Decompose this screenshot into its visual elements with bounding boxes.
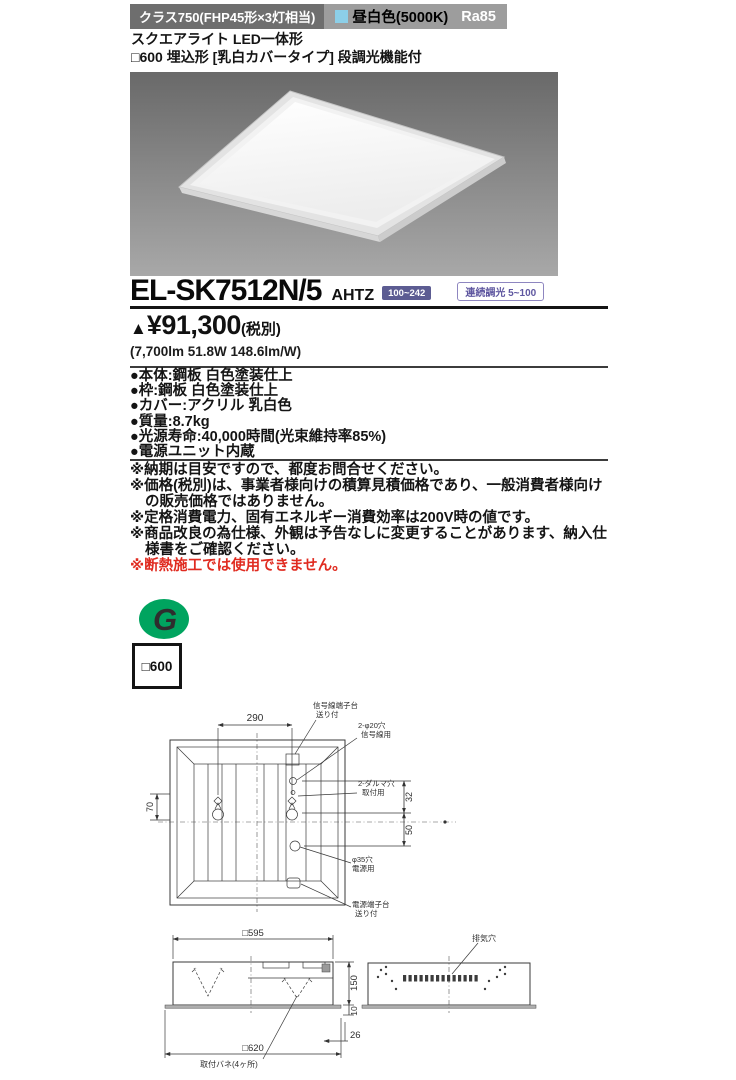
g-letter: G bbox=[153, 602, 177, 637]
spec-item: ●電源ユニット内蔵 bbox=[130, 445, 386, 460]
dim-50: 50 bbox=[404, 825, 414, 835]
model-underline bbox=[130, 306, 608, 309]
price-tax-note: (税別) bbox=[241, 318, 281, 339]
notes-list: ※納期は目安ですので、都度お問合せください。 ※価格(税別)は、事業者様向けの積… bbox=[130, 462, 610, 574]
led-panel-image bbox=[130, 72, 558, 276]
spec-list: ●本体:鋼板 白色塗装仕上 ●枠:鋼板 白色塗装仕上 ●カバー:アクリル 乳白色… bbox=[130, 369, 386, 460]
signal-terminal-symbol bbox=[286, 754, 299, 765]
power-terminal-symbol bbox=[287, 878, 300, 888]
section-housing bbox=[173, 962, 333, 1005]
color-temp-section: 昼白色(5000K) Ra85 bbox=[324, 4, 507, 29]
spec-item: ●カバー:アクリル 乳白色 bbox=[130, 399, 386, 414]
note-item: ※定格消費電力、固有エネルギー消費効率は200V時の値です。 bbox=[130, 510, 610, 526]
spec-item: ●光源寿命:40,000時間(光束維持率85%) bbox=[130, 430, 386, 445]
spring-label: 取付バネ(4ヶ所) bbox=[200, 1059, 258, 1069]
dim-32: 32 bbox=[404, 792, 414, 802]
subtitle-line1: スクエアライト LED一体形 bbox=[131, 31, 422, 49]
model-row: EL-SK7512N/5 AHTZ 100~242 連続調光 5~100 bbox=[130, 274, 544, 308]
ra-label: Ra85 bbox=[461, 9, 496, 25]
voltage-badge: 100~242 bbox=[382, 286, 431, 300]
g-mark-logo: G bbox=[138, 598, 190, 645]
product-subtitle: スクエアライト LED一体形 □600 埋込形 [乳白カバータイプ] 段調光機能… bbox=[131, 31, 422, 66]
drawing-side-views: □595 150 10 26 □620 取付バネ(4ヶ所) bbox=[156, 926, 556, 1080]
power-hole-label2: 電源用 bbox=[352, 864, 375, 873]
signal-holes-label2: 信号線用 bbox=[361, 729, 391, 739]
dim-595: □595 bbox=[242, 928, 264, 939]
divider bbox=[130, 459, 608, 461]
power-hole-label: φ35穴 bbox=[352, 854, 373, 864]
color-swatch-icon bbox=[335, 10, 348, 23]
spec-item: ●質量:8.7kg bbox=[130, 415, 386, 430]
price-mark: ▲ bbox=[130, 319, 147, 339]
size-badge: □600 bbox=[132, 643, 182, 689]
dim-26: 26 bbox=[350, 1030, 361, 1041]
model-number: EL-SK7512N/5 bbox=[130, 274, 321, 308]
spring-section-symbol bbox=[192, 968, 312, 998]
signal-holes-label: 2-φ20穴 bbox=[358, 720, 386, 730]
power-terminal-label2: 送り付 bbox=[355, 908, 378, 918]
side-views-svg: □595 150 10 26 □620 取付バネ(4ヶ所) bbox=[156, 926, 556, 1080]
price-row: ▲ ¥91,300 (税別) bbox=[130, 310, 281, 341]
note-item: ※価格(税別)は、事業者様向けの積算見積価格であり、一般消費者様向けの販売価格で… bbox=[130, 478, 610, 510]
daruma-holes-label2: 取付用 bbox=[362, 787, 385, 797]
catalog-page: クラス750(FHP45形×3灯相当) 昼白色(5000K) Ra85 スクエア… bbox=[0, 0, 736, 1080]
header-bar: クラス750(FHP45形×3灯相当) 昼白色(5000K) Ra85 bbox=[130, 4, 507, 29]
daruma-holes-label: 2-ダルマ穴 bbox=[358, 778, 395, 788]
dim-70: 70 bbox=[146, 802, 155, 812]
drawing-plan-view: 290 70 32 50 信号線端子台 送り付 2-φ20穴 信号線用 2-ダル… bbox=[146, 696, 480, 931]
price-value: ¥91,300 bbox=[147, 310, 241, 341]
insulation-warning: ※断熱施工では使用できません。 bbox=[130, 558, 610, 574]
dimming-badge: 連続調光 5~100 bbox=[457, 282, 544, 301]
dim-150: 150 bbox=[349, 975, 360, 991]
signal-terminal-label2: 送り付 bbox=[316, 709, 339, 719]
size-badge-label: □600 bbox=[142, 659, 173, 674]
model-suffix: AHTZ bbox=[331, 287, 374, 305]
dim-290: 290 bbox=[247, 713, 264, 724]
plan-view-svg: 290 70 32 50 信号線端子台 送り付 2-φ20穴 信号線用 2-ダル… bbox=[146, 696, 480, 926]
class-label: クラス750(FHP45形×3灯相当) bbox=[130, 4, 324, 29]
product-photo bbox=[130, 72, 558, 276]
mounting-spring-symbol bbox=[213, 797, 298, 820]
subtitle-line2: □600 埋込形 [乳白カバータイプ] 段調光機能付 bbox=[131, 49, 422, 67]
dim-10: 10 bbox=[349, 1006, 359, 1016]
signal-terminal-label: 信号線端子台 bbox=[313, 700, 358, 710]
vent-slots bbox=[403, 975, 478, 982]
note-item: ※商品改良の為仕様、外観は予告なしに変更することがあります、納入仕様書をご確認く… bbox=[130, 526, 610, 558]
vent-label: 排気穴 bbox=[472, 933, 496, 943]
note-item: ※納期は目安ですので、都度お問合せください。 bbox=[130, 462, 610, 478]
color-temp-label: 昼白色(5000K) bbox=[352, 6, 448, 27]
power-terminal-label: 電源端子台 bbox=[352, 899, 390, 909]
power-hole-symbol bbox=[290, 841, 300, 851]
spec-item: ●本体:鋼板 白色塗装仕上 bbox=[130, 369, 386, 384]
performance-specs: (7,700lm 51.8W 148.6lm/W) bbox=[130, 344, 301, 359]
dim-620: □620 bbox=[242, 1043, 264, 1054]
signal-hole-symbol bbox=[290, 778, 297, 785]
